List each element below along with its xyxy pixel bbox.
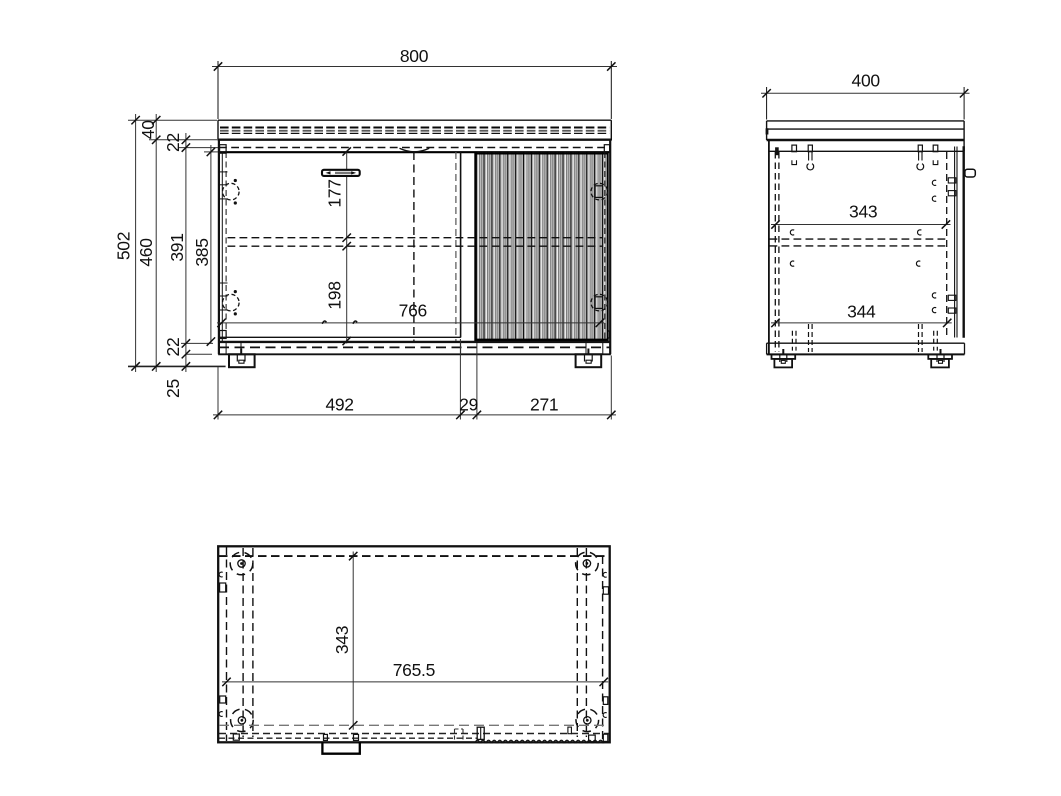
svg-text:765.5: 765.5 <box>393 660 435 680</box>
svg-text:344: 344 <box>847 301 876 321</box>
svg-text:198: 198 <box>325 281 345 309</box>
svg-text:22: 22 <box>163 133 183 152</box>
svg-text:385: 385 <box>192 238 212 266</box>
svg-text:22: 22 <box>163 338 183 357</box>
svg-text:25: 25 <box>163 379 183 398</box>
svg-text:29: 29 <box>459 394 478 414</box>
svg-text:177: 177 <box>325 179 345 207</box>
svg-text:343: 343 <box>332 626 352 654</box>
svg-text:40: 40 <box>138 120 158 139</box>
svg-text:271: 271 <box>530 394 558 414</box>
svg-text:343: 343 <box>849 201 877 221</box>
svg-text:460: 460 <box>136 238 156 267</box>
svg-text:800: 800 <box>400 46 429 66</box>
svg-text:400: 400 <box>852 70 881 90</box>
svg-text:502: 502 <box>114 232 134 260</box>
svg-text:766: 766 <box>399 301 427 321</box>
svg-text:492: 492 <box>325 394 353 414</box>
svg-text:391: 391 <box>167 233 187 261</box>
